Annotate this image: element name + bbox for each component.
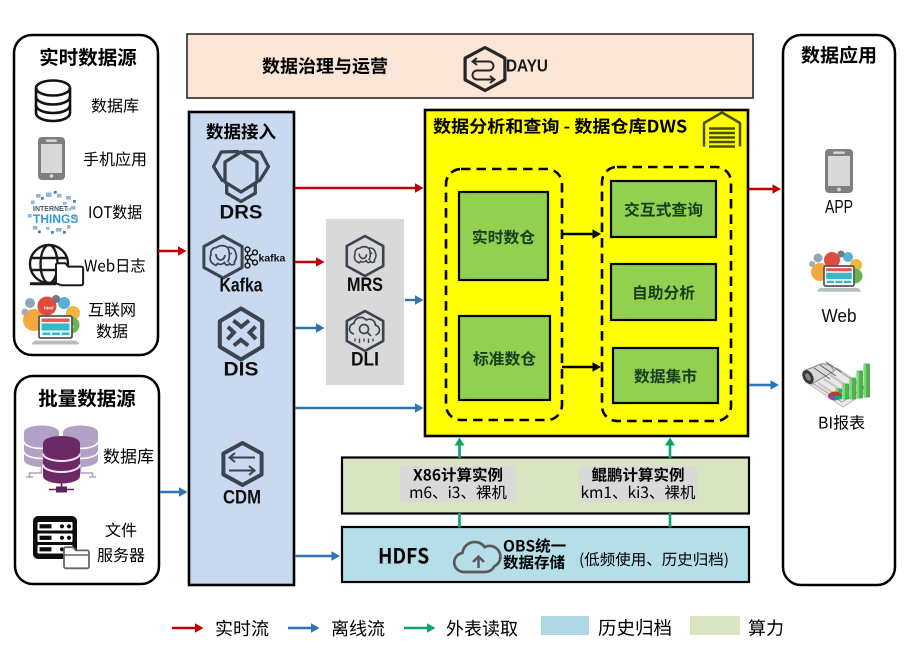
svg-text:Kafka: Kafka bbox=[220, 276, 263, 297]
svg-text:DRS: DRS bbox=[220, 203, 263, 224]
svg-text:APP: APP bbox=[825, 197, 853, 217]
svg-text:DAYU: DAYU bbox=[506, 56, 548, 76]
svg-text:kafka: kafka bbox=[259, 253, 286, 265]
svg-text:MRS: MRS bbox=[347, 275, 383, 296]
svg-text:Web: Web bbox=[822, 306, 857, 326]
svg-text:DLI: DLI bbox=[351, 350, 379, 371]
svg-text:THINGS: THINGS bbox=[33, 212, 78, 226]
svg-text:html: html bbox=[44, 306, 54, 311]
svg-text:DIS: DIS bbox=[224, 360, 259, 381]
svg-text:CDM: CDM bbox=[223, 488, 261, 509]
